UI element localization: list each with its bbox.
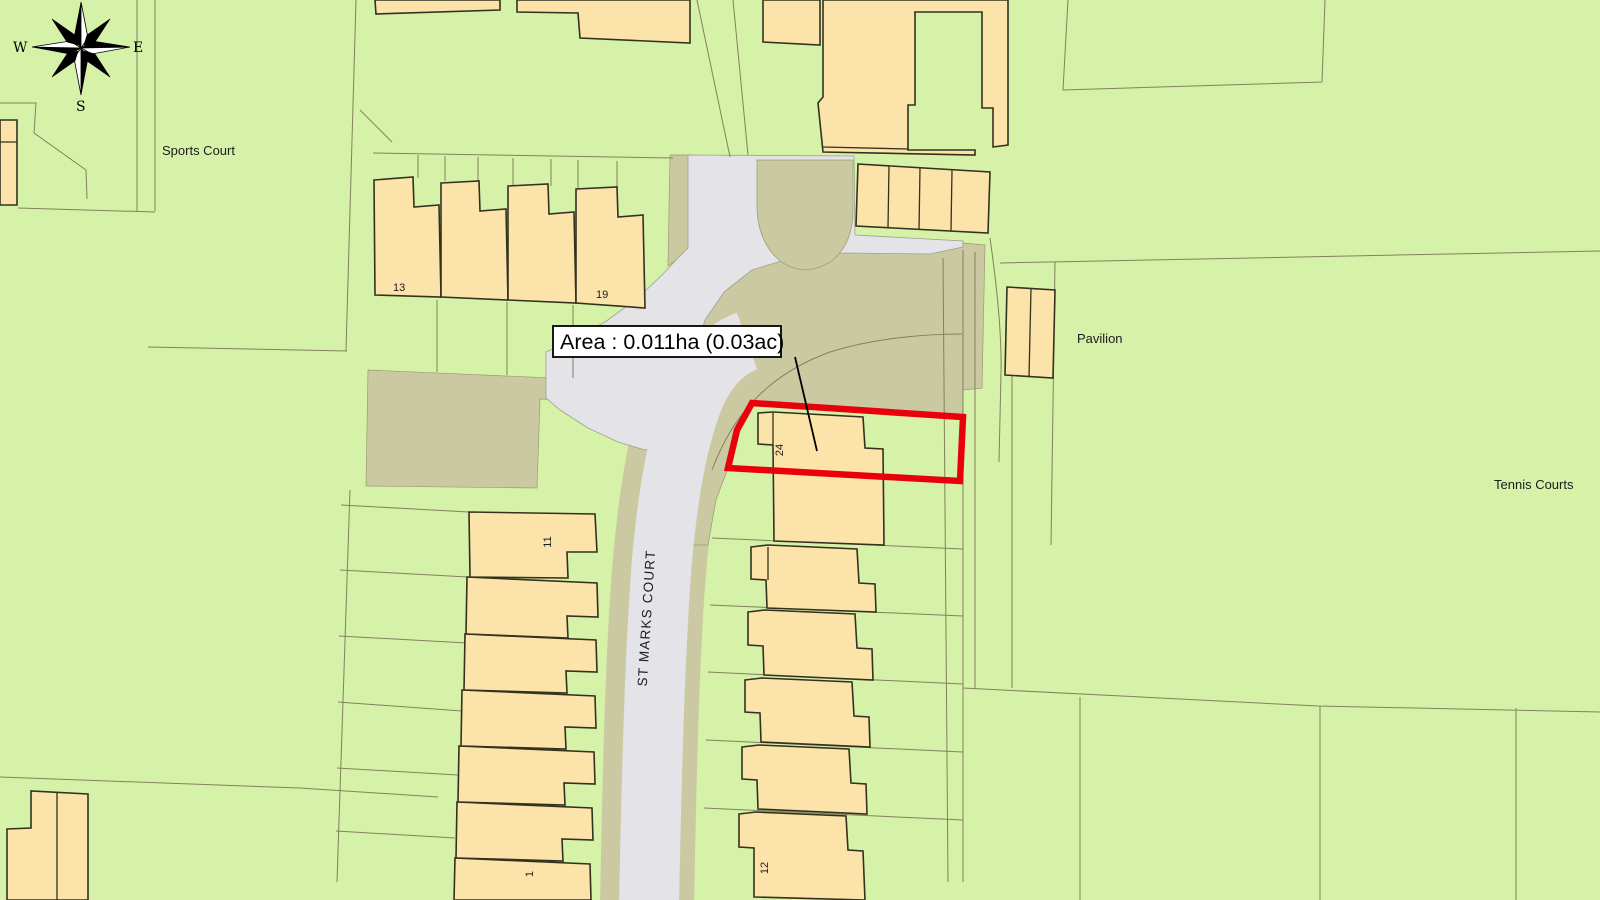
area-label-text: Area : 0.011ha (0.03ac) (560, 330, 784, 354)
house-number-1: 1 (524, 871, 536, 877)
building (763, 0, 820, 45)
compass-south-label: S (76, 99, 86, 115)
map-canvas[interactable]: Sports Court Pavilion Tennis Courts ST M… (0, 0, 1600, 900)
building (0, 120, 17, 205)
house-number-19: 19 (596, 289, 608, 301)
building-12 (739, 812, 865, 900)
building (745, 678, 870, 747)
tennis-courts-label: Tennis Courts (1494, 477, 1574, 492)
building (751, 545, 876, 612)
compass-west-label: W (13, 40, 28, 56)
garage-block (856, 164, 990, 233)
compass-east-label: E (133, 40, 143, 56)
pavilion-label: Pavilion (1077, 331, 1123, 346)
building (742, 745, 867, 814)
house-number-13: 13 (393, 282, 405, 294)
house-number-12: 12 (759, 862, 771, 874)
sports-court-label: Sports Court (162, 143, 235, 158)
building (748, 610, 873, 680)
house-number-24: 24 (774, 444, 786, 456)
building (454, 858, 591, 900)
house-number-11: 11 (542, 536, 554, 547)
